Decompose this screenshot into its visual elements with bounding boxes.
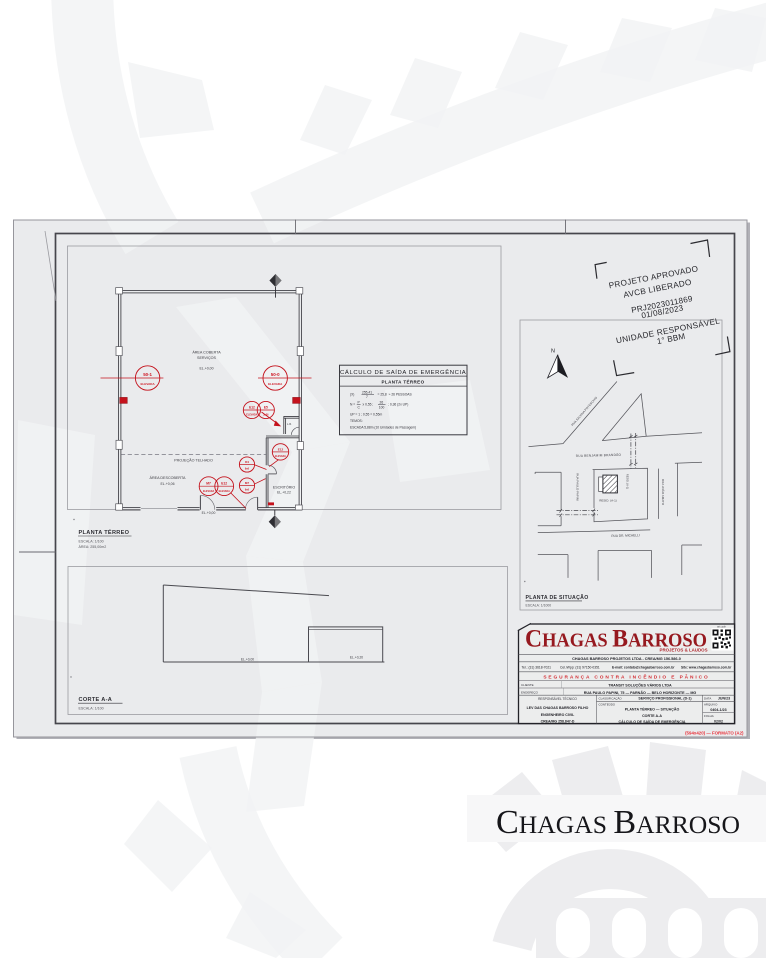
svg-text:CREA/MG 258.847-D: CREA/MG 258.847-D xyxy=(541,719,575,723)
svg-text:RUA PAULO PAPINI, 75 — PARNÃ: RUA PAULO PAPINI, 75 — PARNÃO — BELO HOR… xyxy=(584,690,697,695)
svg-text:CONTEÚDO: CONTEÚDO xyxy=(599,703,616,707)
svg-text:ENGENHEIRO CIVIL: ENGENHEIRO CIVIL xyxy=(541,713,575,717)
svg-text:N =: N = xyxy=(350,403,355,407)
svg-text:RUA DR. MICAELLI: RUA DR. MICAELLI xyxy=(611,533,640,538)
svg-text:50-0: 50-0 xyxy=(271,372,280,377)
svg-text:CÁLCULO DE SAÍDA DE EMERGÊNCIA: CÁLCULO DE SAÍDA DE EMERGÊNCIA xyxy=(340,368,466,376)
svg-text:PROJEÇÃO TELHADO: PROJEÇÃO TELHADO xyxy=(174,458,213,463)
svg-text:x 0,55 ;: x 0,55 ; xyxy=(363,403,374,407)
svg-text:RESID. (A-1): RESID. (A-1) xyxy=(625,474,629,489)
svg-text:CORTE A-A: CORTE A-A xyxy=(642,714,662,718)
svg-text:TEMOS:: TEMOS: xyxy=(350,419,363,423)
svg-text:JUN/23: JUN/23 xyxy=(718,697,730,701)
svg-text:(594x420) — FORMATO (A2): (594x420) — FORMATO (A2) xyxy=(685,731,744,736)
svg-text:E12: E12 xyxy=(278,448,284,452)
svg-text:RUA JOÃO AMATO: RUA JOÃO AMATO xyxy=(661,479,666,506)
svg-text:02/02: 02/02 xyxy=(714,719,723,723)
svg-text:EL.+0,20: EL.+0,20 xyxy=(350,655,363,659)
svg-text:PLANTA TÉRREO: PLANTA TÉRREO xyxy=(382,378,425,385)
svg-text:art.code: art.code xyxy=(717,625,726,628)
svg-text:SERVIÇO PROFISSIONAL (D-1): SERVIÇO PROFISSIONAL (D-1) xyxy=(638,697,692,701)
svg-text:PLANTA DE SITUAÇÃO: PLANTA DE SITUAÇÃO xyxy=(526,594,589,601)
svg-text:CLASSIFICAÇÃO: CLASSIFICAÇÃO xyxy=(599,695,623,700)
svg-text:CHAGAS BARROSO: CHAGAS BARROSO xyxy=(496,804,740,841)
svg-text:ELEVADA: ELEVADA xyxy=(268,382,283,386)
svg-text:E12: E12 xyxy=(249,406,255,410)
svg-text:ELEVADA: ELEVADA xyxy=(203,490,215,493)
svg-text:9x6: 9x6 xyxy=(245,468,250,471)
svg-text:E-mail: contato@chagasbarroso.: E-mail: contato@chagasbarroso.com.br xyxy=(612,666,675,670)
svg-text:ESCALA: 1/100: ESCALA: 1/100 xyxy=(79,706,104,710)
svg-text:E5: E5 xyxy=(264,406,268,410)
svg-text:ESCADA 5,88m (10 Unidades de P: ESCADA 5,88m (10 Unidades de Passagem) xyxy=(350,425,416,429)
svg-text:50-1: 50-1 xyxy=(143,372,152,377)
svg-text:Tel.: (31) 3618-7021: Tel.: (31) 3618-7021 xyxy=(522,666,552,670)
svg-text:SERVIÇOS: SERVIÇOS xyxy=(197,356,217,360)
svg-text:ÁREA COBERTA: ÁREA COBERTA xyxy=(192,351,221,355)
svg-text:ARQUIVO: ARQUIVO xyxy=(704,703,718,707)
svg-text:PROJETOS & LAUDOS: PROJETOS & LAUDOS xyxy=(660,648,708,653)
svg-text:M7: M7 xyxy=(245,481,249,485)
svg-text:= 25,8 ≈ 26 PESSOAS: = 25,8 ≈ 26 PESSOAS xyxy=(378,393,413,397)
svg-text:Cel./Wpp: (31) 97150-0351: Cel./Wpp: (31) 97150-0351 xyxy=(560,666,600,670)
svg-text:DATA: DATA xyxy=(704,696,711,700)
svg-text:N: N xyxy=(551,349,555,355)
svg-text:E12: E12 xyxy=(221,482,227,486)
svg-text:EL.+0,06: EL.+0,06 xyxy=(160,482,174,486)
svg-text:ESCALA: 1/100: ESCALA: 1/100 xyxy=(79,539,104,543)
svg-text:3x36: 3x36 xyxy=(263,413,269,416)
svg-text:L.R.: L.R. xyxy=(287,422,292,426)
svg-text:ELEVADA: ELEVADA xyxy=(141,382,156,386)
svg-text:ELEVADA: ELEVADA xyxy=(219,490,231,493)
svg-text:EL.+0,00: EL.+0,00 xyxy=(241,658,254,662)
svg-text:0404-1/23: 0404-1/23 xyxy=(710,708,726,712)
svg-text:EL.+0,22: EL.+0,22 xyxy=(277,490,291,494)
svg-text:UP = 1 ; 0,55 = 0,55m: UP = 1 ; 0,55 = 0,55m xyxy=(350,413,382,417)
svg-text:ESCRITÓRIO: ESCRITÓRIO xyxy=(273,485,296,490)
svg-text:LEV DAS CHAGAS BARROSO FILHO: LEV DAS CHAGAS BARROSO FILHO xyxy=(527,706,589,710)
svg-text:CLIENTE: CLIENTE xyxy=(521,683,534,687)
svg-text:(X): (X) xyxy=(350,393,354,397)
svg-text:100: 100 xyxy=(379,405,385,409)
svg-text:EL.+0,00: EL.+0,00 xyxy=(199,366,213,370)
svg-text:26: 26 xyxy=(380,401,384,405)
svg-text:RESPONSÁVEL TÉCNICO: RESPONSÁVEL TÉCNICO xyxy=(538,696,577,701)
svg-text:ENDEREÇO: ENDEREÇO xyxy=(521,691,539,695)
svg-text:255,41: 255,41 xyxy=(362,391,372,395)
svg-text:ESCALA: 1/1000: ESCALA: 1/1000 xyxy=(526,603,552,607)
svg-text:PLANTA TÉRREO: PLANTA TÉRREO xyxy=(79,528,130,536)
svg-text:TRANSIT SOLUÇÕES VÁRIOS LTDA: TRANSIT SOLUÇÕES VÁRIOS LTDA xyxy=(608,682,672,687)
svg-text:EL.+0,00: EL.+0,00 xyxy=(202,511,216,515)
svg-text:PLANTA TÉRREO — SITUAÇÃO: PLANTA TÉRREO — SITUAÇÃO xyxy=(625,706,680,711)
svg-text:D4: D4 xyxy=(245,460,249,464)
svg-text:FOLHA: FOLHA xyxy=(704,714,714,718)
svg-text:Site: www.chagasbarroso.com.br: Site: www.chagasbarroso.com.br xyxy=(681,666,732,670)
svg-text:7: 7 xyxy=(366,395,368,399)
svg-text:RESID. (A-1): RESID. (A-1) xyxy=(599,499,617,503)
svg-text:M7: M7 xyxy=(206,482,211,486)
svg-text:ÁREA DESCOBERTA: ÁREA DESCOBERTA xyxy=(150,476,186,480)
svg-text:CORTE A-A: CORTE A-A xyxy=(79,697,113,703)
svg-text:CHAGAS BARROSO PROJETOS LTDA -: CHAGAS BARROSO PROJETOS LTDA - CREA/MG 1… xyxy=(572,657,681,661)
svg-text:ÁREA: 255,00m2: ÁREA: 255,00m2 xyxy=(79,545,107,549)
svg-text:CÁLCULO DE SAÍDA DE EMERGÊNCIA: CÁLCULO DE SAÍDA DE EMERGÊNCIA xyxy=(619,719,686,724)
svg-text:RUA PAULO PAPINI: RUA PAULO PAPINI xyxy=(576,473,580,501)
svg-text:ELEVADA: ELEVADA xyxy=(246,413,258,416)
svg-text:ELEVADA: ELEVADA xyxy=(275,455,286,458)
svg-text:9x6: 9x6 xyxy=(245,489,250,492)
svg-text:; 0,36 (2x UP): ; 0,36 (2x UP) xyxy=(388,403,408,407)
